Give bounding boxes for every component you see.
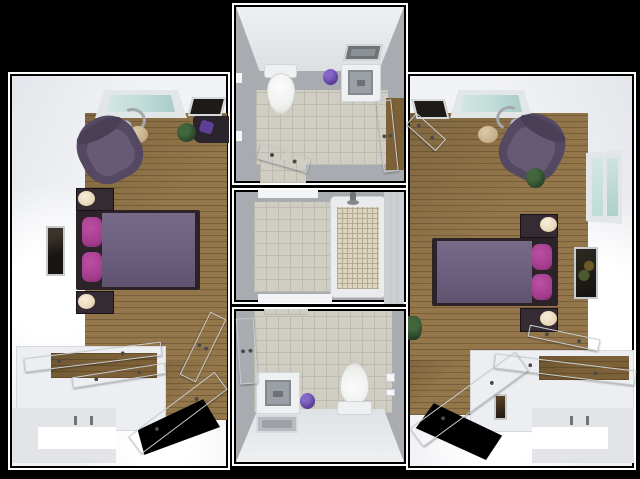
bathtub[interactable] — [330, 196, 386, 298]
sink-drain — [357, 80, 365, 86]
desk-chair — [198, 119, 214, 134]
toilet-bowl — [267, 73, 295, 114]
toilet-bowl — [340, 363, 369, 405]
plant[interactable] — [408, 316, 422, 340]
tub-room-unit — [232, 188, 408, 304]
tubroom-doorway — [264, 309, 308, 315]
table-lamp — [78, 294, 95, 309]
left-bedroom-unit — [8, 72, 230, 470]
doorway-sill — [258, 294, 332, 303]
wall-picture[interactable] — [46, 226, 65, 276]
top-bathroom-unit — [232, 3, 408, 185]
bed-blanket — [102, 213, 195, 287]
plant[interactable] — [177, 123, 196, 142]
right-bedroom-unit — [406, 72, 636, 470]
window-glass — [607, 158, 618, 216]
wall-hook — [90, 416, 93, 425]
entry-alcove-wall — [12, 408, 116, 463]
bed[interactable] — [432, 238, 558, 306]
bed[interactable] — [76, 210, 200, 290]
tub-room-right-wall — [384, 192, 404, 304]
table-lamp — [78, 191, 95, 206]
entry-alcove-notch — [532, 427, 608, 449]
vanity-sink[interactable] — [256, 372, 300, 414]
bottom-bathroom-unit — [232, 307, 408, 466]
toilet[interactable] — [336, 361, 372, 413]
towel-hook — [386, 389, 395, 396]
wall-art[interactable] — [188, 97, 227, 116]
top-bathroom-top-wall — [236, 7, 404, 71]
bed-pillow — [82, 252, 102, 282]
side-window[interactable] — [586, 150, 622, 224]
mirror-glass — [350, 49, 375, 56]
trash-can[interactable] — [323, 69, 338, 85]
toilet-tank — [337, 401, 372, 415]
door-hinge — [236, 73, 242, 83]
bed-pillow — [532, 244, 552, 270]
bath-mat-center — [262, 420, 292, 428]
window-glass — [592, 158, 603, 216]
plant[interactable] — [526, 168, 545, 188]
sink-basin — [348, 70, 373, 95]
desk[interactable] — [193, 116, 229, 143]
vanity-sink[interactable] — [341, 64, 381, 102]
doorway-sill — [258, 190, 318, 198]
sink-basin — [265, 380, 291, 406]
bath-mat[interactable] — [256, 415, 298, 433]
wall-picture[interactable] — [574, 247, 598, 299]
ottoman[interactable] — [478, 126, 498, 143]
wall-hook — [570, 416, 573, 425]
table-lamp — [540, 217, 557, 232]
toilet[interactable] — [262, 64, 298, 114]
bed-blanket — [437, 241, 532, 303]
bathtub-basin — [337, 207, 379, 289]
bathroom-mirror[interactable] — [343, 44, 383, 61]
faucet-base — [347, 200, 359, 205]
floorplan-scene — [0, 0, 640, 479]
closet-picture[interactable] — [494, 394, 507, 420]
bed-pillow — [82, 217, 102, 247]
table-lamp — [540, 311, 557, 326]
tub-room-floor — [254, 202, 332, 292]
sink-drain — [273, 391, 283, 397]
wall-hook — [586, 416, 589, 425]
wall-hook — [74, 416, 77, 425]
entry-alcove-wall — [532, 408, 634, 463]
toilet-paper-holder[interactable] — [386, 373, 395, 382]
trash-can[interactable] — [300, 393, 315, 409]
bed-pillow — [532, 274, 552, 300]
entry-alcove-notch — [38, 427, 116, 449]
tub-faucet[interactable] — [346, 190, 360, 208]
door-hinge — [236, 131, 242, 141]
